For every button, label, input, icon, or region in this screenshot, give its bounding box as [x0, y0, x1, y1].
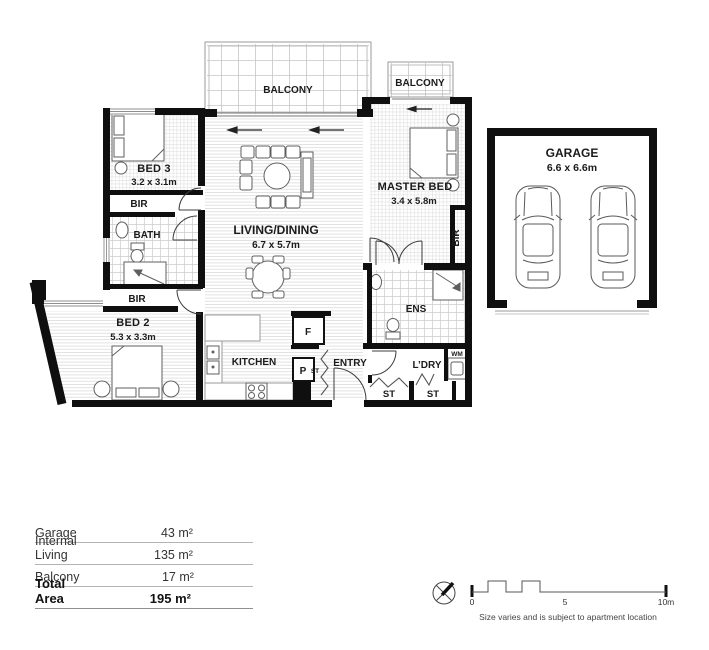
kitchen-label: KITCHEN: [232, 357, 276, 368]
coffee-table-icon: [264, 163, 290, 189]
wm-label: WM: [451, 351, 463, 358]
laundry-door: [372, 351, 396, 375]
area-value: 17 m²: [79, 570, 193, 584]
store-kitchen-label: ST: [311, 368, 319, 375]
ens-sink-icon: [371, 275, 382, 290]
cars: [514, 186, 637, 288]
scale-tick-0: 0: [470, 597, 475, 607]
scale-caption: Size varies and is subject to apartment …: [479, 612, 657, 622]
ens-toilet-icon: [386, 332, 400, 339]
washing-machine-icon: [448, 358, 466, 379]
scale-tick-10: 10m: [658, 597, 675, 607]
car-icon: [514, 186, 562, 288]
floorplan-page: BALCONY BALCONY BED 3 3.2 x 3.1m BIR BAT…: [0, 0, 709, 650]
area-row-internal: Internal Living 135 m²: [35, 543, 253, 565]
store1-bifold: [370, 378, 408, 387]
area-total-value: 195 m²: [71, 591, 191, 606]
compass-icon: [433, 582, 455, 604]
balcony-small-label: BALCONY: [395, 78, 445, 89]
bir-bed2-label: BIR: [128, 294, 146, 305]
dining-table-icon: [246, 256, 290, 298]
ens-label: ENS: [406, 304, 427, 315]
car-icon: [589, 186, 637, 288]
bath-label: BATH: [133, 230, 160, 241]
bir-master-label: BIR: [451, 229, 462, 247]
garage-label: GARAGE: [546, 146, 599, 160]
entry-label: ENTRY: [333, 358, 367, 369]
bed3-dims: 3.2 x 3.1m: [131, 177, 176, 188]
bed2-label: BED 2: [116, 317, 149, 329]
bed3-label: BED 3: [137, 163, 170, 175]
master-dims: 3.4 x 5.8m: [391, 196, 436, 207]
bath-toilet-icon: [131, 243, 144, 250]
bir-bed3-label: BIR: [130, 199, 148, 210]
master-label: MASTER BED: [378, 181, 453, 193]
laundry-label: L’DRY: [412, 360, 441, 371]
store2-bifold: [416, 374, 434, 385]
living-label: LIVING/DINING: [233, 223, 318, 237]
store1-label: ST: [383, 389, 395, 400]
balcony-main-floor: [207, 44, 369, 114]
area-row-total: Total Area 195 m²: [35, 587, 253, 609]
pantry-label: P: [300, 366, 307, 377]
living-dims: 6.7 x 5.7m: [252, 240, 300, 251]
area-table: Garage 43 m² Internal Living 135 m² Balc…: [35, 521, 253, 609]
fridge-label: F: [305, 327, 311, 338]
store2-label: ST: [427, 389, 439, 400]
bed2-dims: 5.3 x 3.3m: [110, 332, 155, 343]
scale-tick-5: 5: [563, 597, 568, 607]
area-value: 43 m²: [77, 526, 193, 540]
area-total-label: Total Area: [35, 576, 71, 606]
scale-bar: 0 5 10m Size varies and is subject to ap…: [470, 581, 675, 622]
area-label: Internal Living: [35, 534, 77, 562]
bed2-door: [177, 290, 201, 314]
garage-dims: 6.6 x 6.6m: [547, 162, 597, 174]
balcony-main-label: BALCONY: [263, 85, 313, 96]
bath-sink-icon: [116, 222, 128, 238]
area-value: 135 m²: [77, 548, 193, 562]
